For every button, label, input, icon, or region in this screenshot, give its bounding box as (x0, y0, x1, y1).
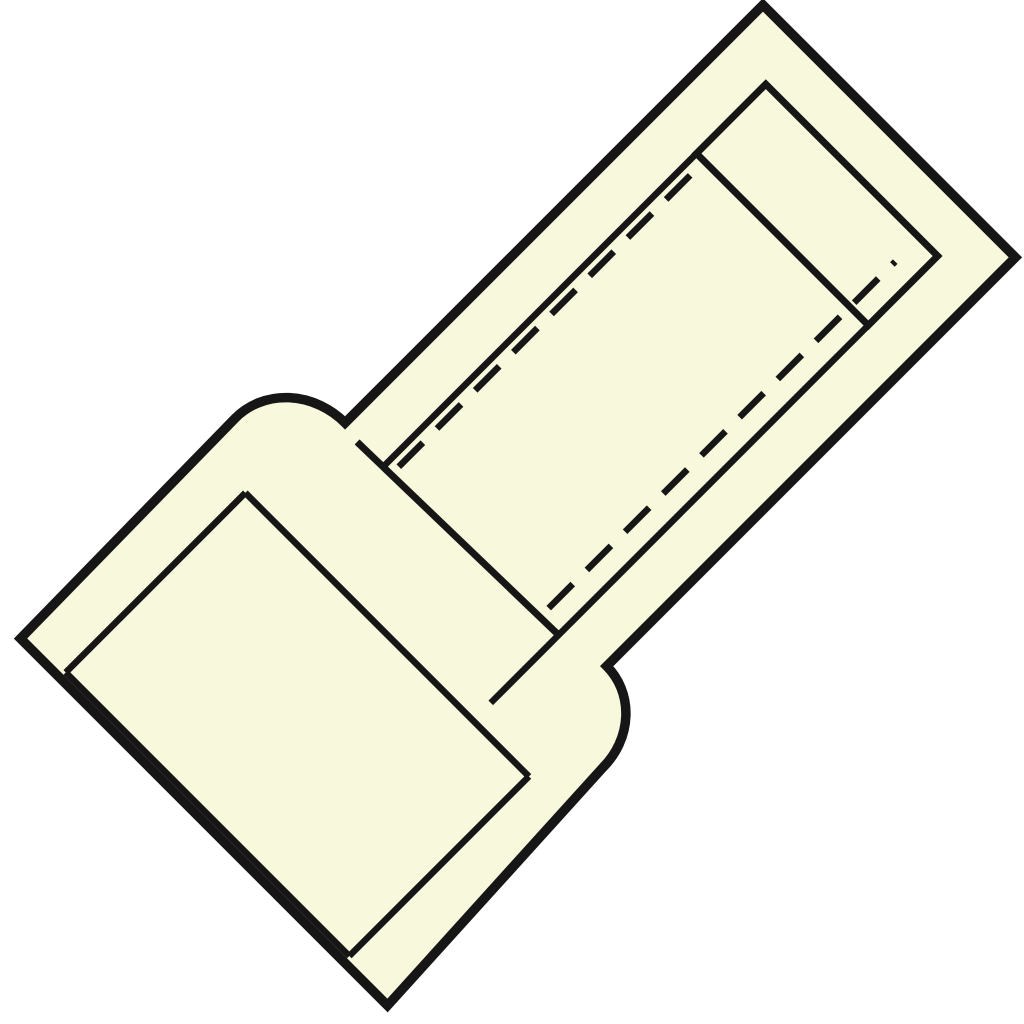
connector-diagram (0, 0, 1024, 1024)
rotated-drawing-group (18, 0, 1024, 1006)
connector-outline (18, 0, 1024, 1006)
connector-drawing-canvas (0, 0, 1024, 1024)
